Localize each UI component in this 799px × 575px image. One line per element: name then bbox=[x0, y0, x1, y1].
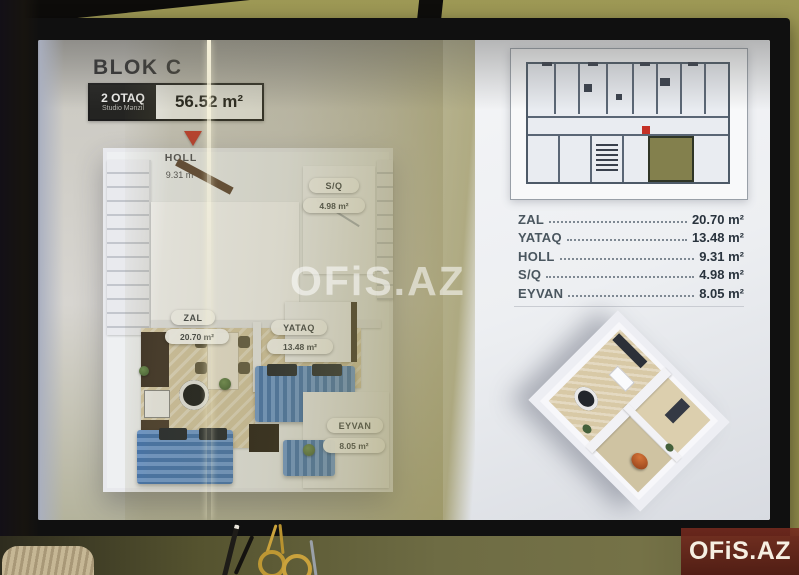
iso-apartment-shell bbox=[528, 310, 729, 511]
row-label: YATAQ bbox=[518, 230, 562, 245]
zal-area-pill: 20.70 m² bbox=[165, 329, 229, 344]
plant bbox=[303, 444, 315, 456]
chair bbox=[238, 336, 250, 348]
table-row: YATAQ 13.48 m² bbox=[518, 227, 744, 246]
table-row: HOLL 9.31 m² bbox=[518, 245, 744, 264]
table-surface bbox=[0, 536, 799, 575]
brand-label: OFiS.AZ bbox=[681, 528, 799, 575]
eyvan-room-pill: EYVAN bbox=[327, 418, 383, 433]
building-overview-plan bbox=[510, 48, 748, 200]
plant bbox=[219, 378, 231, 390]
eyvan-area-pill: 8.05 m² bbox=[323, 438, 385, 453]
row-value: 4.98 m² bbox=[699, 267, 744, 282]
row-label: HOLL bbox=[518, 249, 555, 264]
main-floor-plan: HOLL 9.31 m² S/Q 4.98 m² ZAL 20.70 m² YA… bbox=[103, 148, 393, 492]
yataq-area-pill: 13.48 m² bbox=[267, 339, 333, 354]
zal-room-pill: ZAL bbox=[171, 310, 215, 325]
row-label: ZAL bbox=[518, 212, 544, 227]
holl-room-floor bbox=[151, 202, 299, 322]
iso-3d-view bbox=[498, 306, 738, 516]
tv-screen: BLOK C 2 OTAQ Studio Mənzil 56.52 m² bbox=[38, 40, 770, 520]
apartment-badge: 2 OTAQ Studio Mənzil 56.52 m² bbox=[88, 83, 264, 121]
dotted-leader bbox=[546, 276, 694, 278]
yataq-room-pill: YATAQ bbox=[271, 320, 327, 335]
dotted-leader bbox=[568, 295, 694, 297]
row-value: 13.48 m² bbox=[692, 230, 744, 245]
photo-of-tv-screen: BLOK C 2 OTAQ Studio Mənzil 56.52 m² bbox=[0, 0, 799, 575]
bed-cushion bbox=[312, 364, 342, 376]
chair bbox=[195, 362, 207, 374]
sofa-cushion bbox=[159, 428, 187, 440]
bed-headboard bbox=[351, 302, 357, 362]
round-rug bbox=[179, 380, 209, 410]
dotted-leader bbox=[549, 221, 687, 223]
dotted-leader bbox=[567, 239, 687, 241]
row-value: 8.05 m² bbox=[699, 286, 744, 301]
red-triangle-marker bbox=[184, 131, 202, 146]
sofa-cushion bbox=[199, 428, 227, 440]
chair bbox=[238, 362, 250, 374]
table-row: S/Q 4.98 m² bbox=[518, 264, 744, 283]
stove bbox=[144, 390, 170, 418]
sq-area-pill: 4.98 m² bbox=[303, 198, 365, 213]
kitchen-cabinet bbox=[141, 332, 169, 387]
bed-cushion bbox=[267, 364, 297, 376]
tv-panel bbox=[249, 424, 279, 452]
tv-bezel: BLOK C 2 OTAQ Studio Mənzil 56.52 m² bbox=[8, 18, 790, 540]
badge-room-count: 2 OTAQ Studio Mənzil bbox=[90, 85, 156, 119]
table-row: ZAL 20.70 m² bbox=[518, 208, 744, 227]
building-floor-outline bbox=[526, 62, 730, 184]
wardrobe-shelves bbox=[107, 160, 151, 335]
highlighted-unit bbox=[648, 136, 694, 182]
watermark-text: OFiS.AZ bbox=[290, 258, 466, 305]
unit-red-marker bbox=[642, 126, 650, 134]
plant bbox=[139, 366, 149, 376]
row-value: 20.70 m² bbox=[692, 212, 744, 227]
stairwell bbox=[596, 144, 618, 174]
dotted-leader bbox=[560, 258, 695, 260]
wicker-basket bbox=[2, 546, 94, 575]
badge-total-area: 56.52 m² bbox=[156, 85, 262, 119]
row-label: EYVAN bbox=[518, 286, 563, 301]
table-row: EYVAN 8.05 m² bbox=[518, 282, 744, 301]
sq-room-pill: S/Q bbox=[309, 178, 359, 193]
block-title: BLOK C bbox=[93, 56, 183, 80]
row-value: 9.31 m² bbox=[699, 249, 744, 264]
room-shadow-left bbox=[0, 0, 40, 575]
area-table: ZAL 20.70 m² YATAQ 13.48 m² HOLL 9.31 m²… bbox=[518, 208, 744, 301]
badge-rooms-label: 2 OTAQ bbox=[101, 92, 145, 105]
badge-type-label: Studio Mənzil bbox=[102, 105, 144, 113]
row-label: S/Q bbox=[518, 267, 541, 282]
